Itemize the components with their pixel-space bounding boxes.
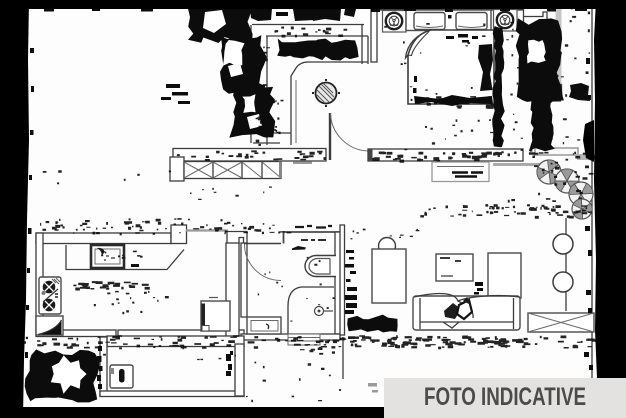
svg-text:FOTO INDICATIVE: FOTO INDICATIVE (424, 383, 586, 411)
